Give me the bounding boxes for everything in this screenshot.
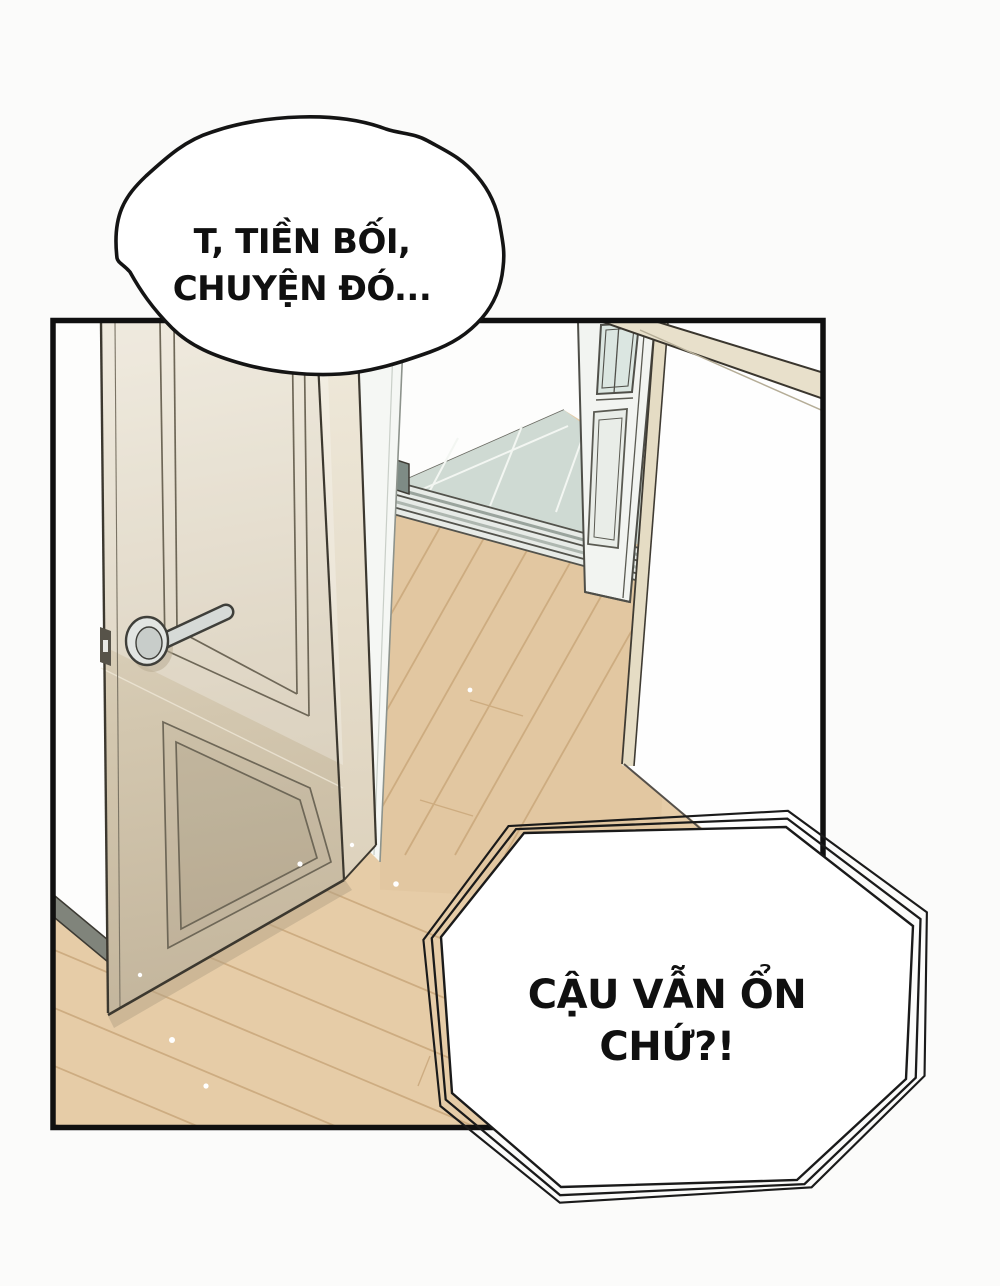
speech-line: CHỨ?!: [477, 1021, 857, 1073]
room-illustration: [0, 0, 1000, 1286]
speech-line: CẬU VẪN ỔN: [477, 969, 857, 1021]
octagon-bubble-text: CẬU VẪN ỔN CHỨ?!: [477, 969, 857, 1073]
speech-line: CHUYỆN ĐÓ...: [112, 266, 492, 313]
door-latch: [100, 627, 111, 666]
comic-page: T, TIỀN BỐI, CHUYỆN ĐÓ... CẬU VẪN ỔN CHỨ…: [0, 0, 1000, 1286]
speech-line: T, TIỀN BỐI,: [112, 219, 492, 266]
cloud-bubble-text: T, TIỀN BỐI, CHUYỆN ĐÓ...: [112, 219, 492, 313]
